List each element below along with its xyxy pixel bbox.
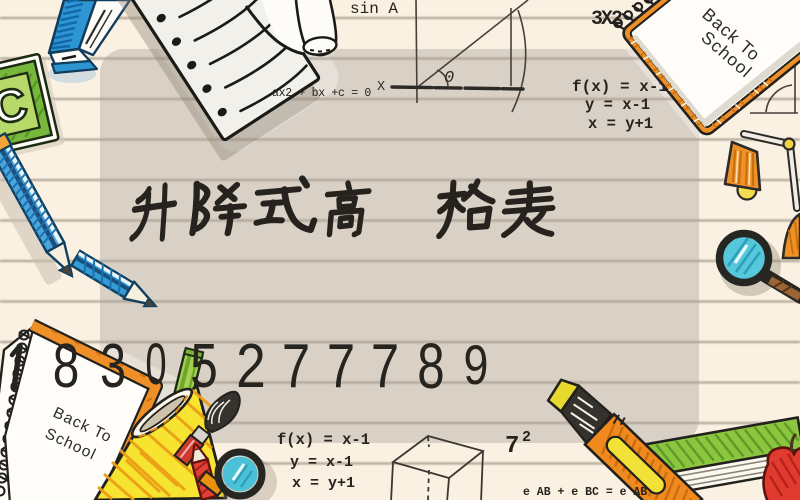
svg-text:5: 5 — [190, 331, 218, 401]
svg-text:sin A: sin A — [350, 0, 398, 18]
svg-text:2: 2 — [236, 332, 266, 401]
svg-text:7: 7 — [327, 332, 355, 401]
svg-text:7: 7 — [505, 433, 519, 460]
svg-text:f(x) = x-1: f(x) = x-1 — [277, 431, 370, 449]
svg-text:y = x-1: y = x-1 — [290, 454, 353, 471]
svg-text:0: 0 — [444, 69, 454, 88]
svg-text:X: X — [377, 80, 385, 95]
svg-text:7: 7 — [282, 332, 310, 401]
svg-text:e AB + e BC = e AB: e AB + e BC = e AB — [523, 486, 647, 499]
svg-text:9: 9 — [464, 333, 489, 396]
svg-text:ax2 + bx +c = 0: ax2 + bx +c = 0 — [272, 87, 371, 100]
svg-text:0: 0 — [145, 333, 166, 397]
svg-text:2: 2 — [522, 429, 531, 446]
svg-text:8: 8 — [417, 331, 444, 403]
svg-text:x = y+1: x = y+1 — [588, 115, 653, 133]
svg-text:3: 3 — [100, 330, 126, 400]
svg-text:y = x-1: y = x-1 — [585, 96, 650, 114]
svg-text:7: 7 — [371, 332, 399, 401]
svg-text:x = y+1: x = y+1 — [292, 475, 355, 492]
svg-text:f(x) = x-1: f(x) = x-1 — [572, 78, 668, 96]
svg-text:8: 8 — [53, 331, 80, 400]
